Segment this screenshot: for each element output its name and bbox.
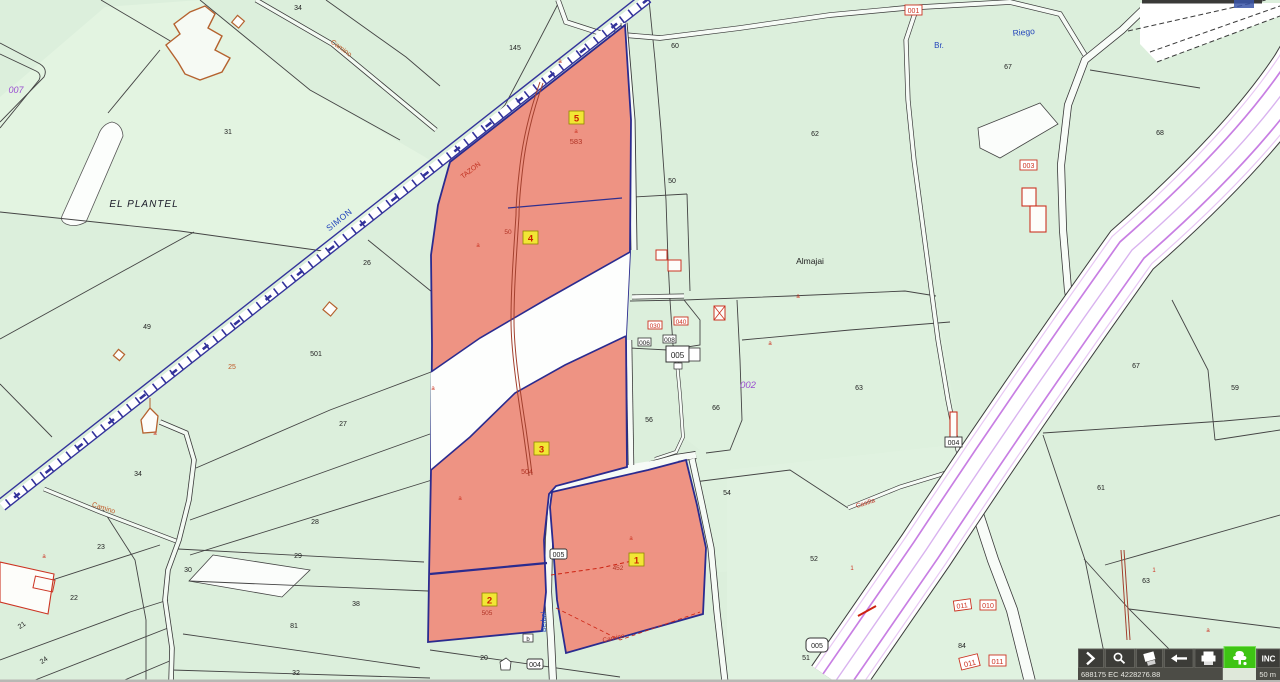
svg-text:1: 1 bbox=[634, 556, 640, 567]
svg-text:004: 004 bbox=[948, 440, 960, 447]
svg-text:59: 59 bbox=[1231, 385, 1239, 392]
svg-text:005: 005 bbox=[671, 351, 685, 360]
svg-text:61: 61 bbox=[1097, 485, 1105, 492]
svg-text:5: 5 bbox=[574, 114, 580, 125]
svg-text:583: 583 bbox=[570, 137, 583, 146]
svg-text:3: 3 bbox=[539, 445, 544, 456]
svg-text:007: 007 bbox=[8, 85, 24, 95]
svg-text:67: 67 bbox=[1004, 64, 1012, 71]
svg-text:66: 66 bbox=[712, 405, 720, 412]
svg-text:63: 63 bbox=[855, 385, 863, 392]
svg-text:63: 63 bbox=[1142, 578, 1150, 585]
svg-text:Br.: Br. bbox=[934, 41, 944, 50]
svg-text:38: 38 bbox=[352, 601, 360, 608]
svg-text:505: 505 bbox=[482, 610, 493, 617]
svg-text:68: 68 bbox=[1156, 130, 1164, 137]
svg-text:688175 EC 4228276.88: 688175 EC 4228276.88 bbox=[1081, 670, 1160, 679]
svg-text:005: 005 bbox=[553, 552, 565, 559]
svg-text:62: 62 bbox=[811, 131, 819, 138]
svg-text:34: 34 bbox=[134, 471, 142, 478]
svg-text:005: 005 bbox=[811, 643, 823, 650]
svg-text:56: 56 bbox=[645, 417, 653, 424]
svg-text:145: 145 bbox=[509, 45, 521, 52]
svg-text:84: 84 bbox=[958, 643, 966, 650]
svg-text:4: 4 bbox=[528, 234, 534, 245]
svg-text:001: 001 bbox=[908, 8, 920, 15]
svg-text:452: 452 bbox=[613, 565, 624, 572]
svg-text:49: 49 bbox=[143, 324, 151, 331]
svg-text:INC: INC bbox=[1262, 655, 1276, 664]
svg-text:006: 006 bbox=[639, 340, 650, 347]
svg-text:50: 50 bbox=[668, 178, 676, 185]
svg-text:60: 60 bbox=[671, 43, 679, 50]
svg-text:501: 501 bbox=[310, 351, 322, 358]
svg-text:52: 52 bbox=[810, 556, 818, 563]
svg-text:25: 25 bbox=[228, 364, 236, 371]
svg-text:26: 26 bbox=[363, 260, 371, 267]
svg-text:004: 004 bbox=[529, 662, 541, 669]
svg-text:51: 51 bbox=[802, 655, 810, 662]
svg-text:002: 002 bbox=[740, 380, 757, 391]
svg-text:Berbel: Berbel bbox=[541, 611, 548, 632]
svg-text:50: 50 bbox=[504, 229, 512, 236]
svg-text:20: 20 bbox=[480, 655, 488, 662]
svg-text:Almajai: Almajai bbox=[796, 256, 824, 266]
svg-text:010: 010 bbox=[982, 603, 994, 610]
svg-text:28: 28 bbox=[311, 519, 319, 526]
svg-text:32: 32 bbox=[292, 670, 300, 677]
svg-text:EL PLANTEL: EL PLANTEL bbox=[109, 199, 178, 210]
svg-text:23: 23 bbox=[97, 544, 105, 551]
svg-text:040: 040 bbox=[676, 319, 687, 326]
svg-text:011: 011 bbox=[992, 657, 1004, 666]
svg-text:22: 22 bbox=[70, 595, 78, 602]
svg-text:008: 008 bbox=[664, 337, 675, 344]
svg-text:27: 27 bbox=[339, 421, 347, 428]
svg-text:030: 030 bbox=[650, 323, 661, 330]
svg-text:2: 2 bbox=[487, 596, 492, 607]
svg-text:31: 31 bbox=[224, 129, 232, 136]
svg-text:504: 504 bbox=[521, 469, 533, 476]
svg-text:30: 30 bbox=[184, 567, 192, 574]
svg-text:003: 003 bbox=[1023, 163, 1035, 170]
svg-text:50 m: 50 m bbox=[1259, 670, 1276, 679]
svg-text:54: 54 bbox=[723, 490, 731, 497]
svg-text:81: 81 bbox=[290, 623, 298, 630]
svg-text:67: 67 bbox=[1132, 363, 1140, 370]
svg-text:29: 29 bbox=[294, 553, 302, 560]
svg-text:34: 34 bbox=[294, 5, 302, 12]
